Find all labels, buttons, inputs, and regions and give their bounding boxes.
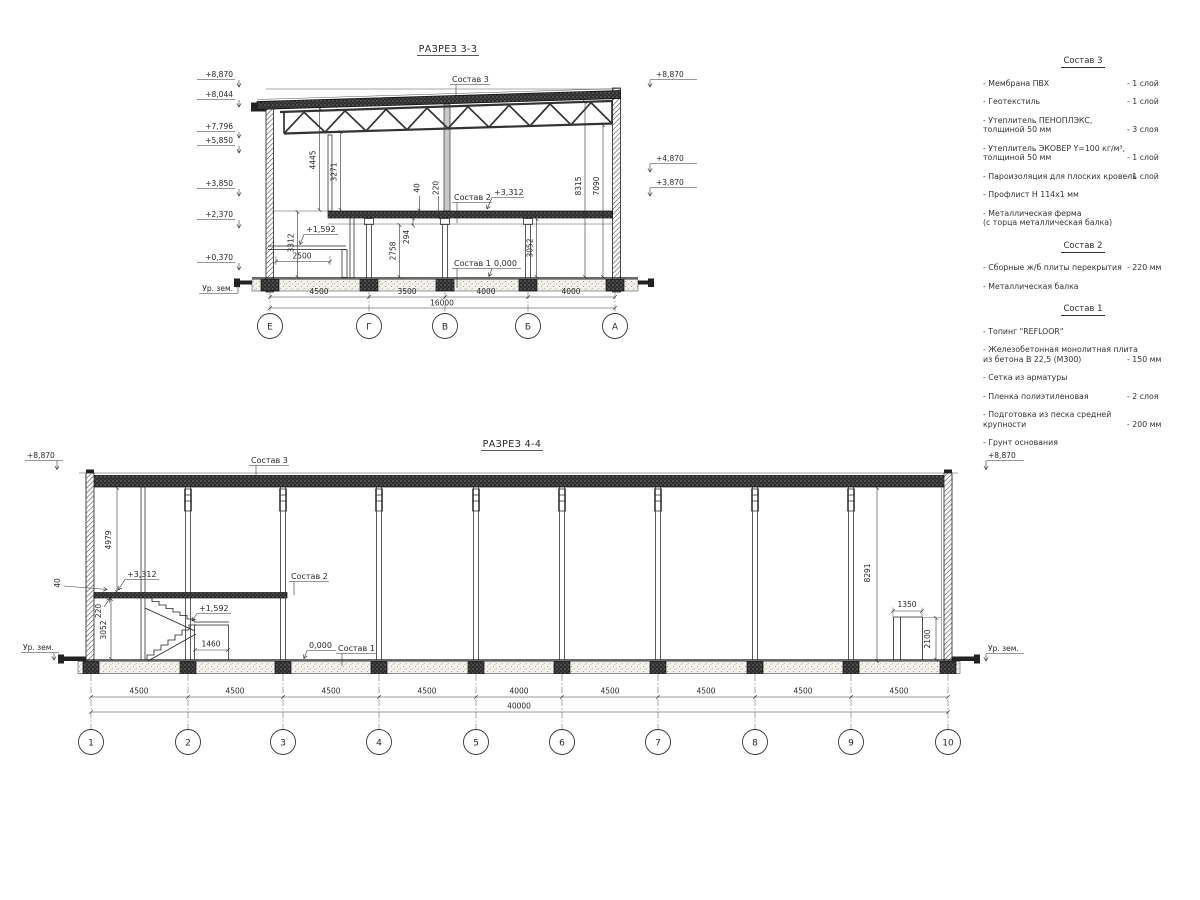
elevation-label: +5,850 xyxy=(205,136,233,145)
level-1592-label: +1,592 xyxy=(306,225,336,234)
legend-item: - Мембрана ПВХ- 1 слой xyxy=(983,79,1183,89)
dim-text: 3052 xyxy=(526,238,535,257)
section-3-3: РАЗРЕЗ 3-3 xyxy=(197,44,697,339)
bottom-dims-4-4: 4500 4500 4500 4500 4000 4500 4500 4500 … xyxy=(79,674,961,755)
legend-item: - Профлист Н 114х1 мм xyxy=(983,190,1183,200)
door xyxy=(894,617,942,660)
elevation-label: +8,870 xyxy=(205,70,233,79)
legend-item: - Утеплитель ПЕНОПЛЭКС,толщиной 50 мм- 3… xyxy=(983,116,1183,135)
upper-column-v xyxy=(444,104,450,211)
grid-bubble-label: 5 xyxy=(473,739,479,749)
dim-text: 4500 xyxy=(600,687,619,696)
legend-item: - Геотекстиль- 1 слой xyxy=(983,97,1183,107)
elevation-label: +3,850 xyxy=(205,179,233,188)
elevation-marks-left: +8,870 +8,044 +7,796 +5,850 +3,850 +2,37… xyxy=(197,70,239,294)
dim-text: 4500 xyxy=(696,687,715,696)
grid-bubble-label: 6 xyxy=(559,739,565,749)
dim-text: 8315 xyxy=(574,176,583,195)
callouts-4-4: Состав 3 Состав 2 Состав 1 0,000 +3,312 … xyxy=(118,456,376,666)
legend-heading-sostav1: Состав 1 xyxy=(983,305,1183,315)
elevation-label: +8,870 xyxy=(656,70,684,79)
layers1-label: Состав 1 xyxy=(454,259,491,268)
ground-level-label: Ур. зем. xyxy=(988,644,1019,653)
dim-text: 4500 xyxy=(321,687,340,696)
stair-wall-lower xyxy=(350,218,354,278)
grid-bubble-label: 3 xyxy=(280,739,286,749)
layers1-label: Состав 1 xyxy=(338,644,375,653)
level-0-label: 0,000 xyxy=(309,641,332,650)
level-1592-label: +1,592 xyxy=(199,604,229,613)
elevation-label: +4,870 xyxy=(656,154,684,163)
ground-strip xyxy=(78,662,960,674)
dim-text: 2758 xyxy=(389,241,398,260)
legend-panel: Состав 3 - Мембрана ПВХ- 1 слой - Геотек… xyxy=(983,57,1183,457)
dim-text: 40 xyxy=(413,183,422,193)
roof-slab xyxy=(86,476,952,488)
legend-item: - Утеплитель ЭКОВЕР Y=100 кг/м³,толщиной… xyxy=(983,144,1183,163)
grid-bubbles-3-3: Е Г В Б А xyxy=(258,314,628,339)
dim-text: 4000 xyxy=(561,287,580,296)
level-3312-label: +3,312 xyxy=(127,570,157,579)
layers2-label: Состав 2 xyxy=(454,193,491,202)
section-4-4: РАЗРЕЗ 4-4 xyxy=(21,439,1024,755)
columns-4-4 xyxy=(185,487,855,660)
legend-item: - Железобетонная монолитная плитаиз бето… xyxy=(983,345,1183,364)
section-title: РАЗРЕЗ 3-3 xyxy=(419,44,478,55)
dim-text: 7090 xyxy=(592,176,601,195)
elevation-marks-right: +8,870 +4,870 +3,870 xyxy=(650,70,697,196)
legend-heading-sostav3: Состав 3 xyxy=(983,57,1183,67)
legend-item: - Подготовка из песка среднейкрупности- … xyxy=(983,410,1183,429)
grid-bubble-label: Е xyxy=(267,323,273,333)
dim-text: 3500 xyxy=(397,287,416,296)
dim-text: 4500 xyxy=(129,687,148,696)
dim-text: 3312 xyxy=(287,233,296,252)
elevation-label: +0,370 xyxy=(205,253,233,262)
legend-item: - Металлическая балка xyxy=(983,282,1183,292)
dim-text: 1350 xyxy=(897,600,916,609)
dim-text: 8291 xyxy=(863,563,872,582)
left-wall xyxy=(86,473,94,663)
grid-bubble-label: 2 xyxy=(185,739,191,749)
dim-text: 16000 xyxy=(430,299,454,308)
dim-text: 4000 xyxy=(509,687,528,696)
mezzanine-slab xyxy=(94,593,287,599)
grid-bubble-label: В xyxy=(442,323,448,333)
layers3-label: Состав 3 xyxy=(452,75,489,84)
grid-bubble-label: 8 xyxy=(752,739,758,749)
grid-bubbles-4-4: 1 2 3 4 5 6 7 8 9 10 xyxy=(79,730,961,755)
right-wall xyxy=(613,88,621,292)
dim-text: 40 xyxy=(53,578,62,588)
legend-item: - Топинг "REFLOOR" xyxy=(983,327,1183,337)
elevation-label: +8,044 xyxy=(205,90,233,99)
drawing-sheet: РАЗРЕЗ 3-3 xyxy=(0,0,1200,900)
grid-bubble-label: 9 xyxy=(848,739,854,749)
legend-item: - Сетка из арматуры xyxy=(983,373,1183,383)
dim-text: 294 xyxy=(402,230,411,245)
dim-text: 2500 xyxy=(292,252,311,261)
left-wall xyxy=(266,106,274,292)
dim-text: 4979 xyxy=(104,530,113,549)
elevation-label: +2,370 xyxy=(205,210,233,219)
section-title: РАЗРЕЗ 4-4 xyxy=(483,439,542,450)
grid-bubble-label: 4 xyxy=(376,739,382,749)
ground-level-label: Ур. зем. xyxy=(23,643,54,652)
grid-bubble-label: Б xyxy=(525,323,531,333)
dim-text: 2100 xyxy=(923,629,932,648)
legend-item: - Грунт основания xyxy=(983,438,1183,448)
legend-item: - Пароизоляция для плоских кровель- 1 сл… xyxy=(983,172,1183,182)
layers2-label: Состав 2 xyxy=(291,572,328,581)
dim-text: 220 xyxy=(432,181,441,196)
legend-item: - Сборные ж/б плиты перекрытия- 220 мм xyxy=(983,263,1183,273)
grid-bubble-label: А xyxy=(612,323,619,333)
dim-text: 4500 xyxy=(417,687,436,696)
legend-item: - Пленка полиэтиленовая- 2 слоя xyxy=(983,392,1183,402)
grid-bubble-label: Г xyxy=(366,323,372,333)
structure-4-4 xyxy=(58,470,980,674)
dim-text: 40000 xyxy=(507,702,531,711)
elevation-label: +7,796 xyxy=(205,122,233,131)
elevation-label: +3,870 xyxy=(656,178,684,187)
dim-text: 4500 xyxy=(309,287,328,296)
dim-text: 4445 xyxy=(309,150,318,169)
bottom-dims-3-3: 4500 3500 4000 4000 16000 Е Г В Б А xyxy=(258,287,628,339)
layers3-label: Состав 3 xyxy=(251,456,288,465)
elevation-label: +8,870 xyxy=(27,451,55,460)
dim-text: 3052 xyxy=(99,620,108,639)
dim-text: 3271 xyxy=(330,162,339,181)
dim-text: 4000 xyxy=(476,287,495,296)
legend-heading-sostav2: Состав 2 xyxy=(983,242,1183,252)
floor-slab-3312 xyxy=(328,211,613,218)
dim-text: 220 xyxy=(94,604,103,619)
legend-item: - Металлическая ферма(с торца металличес… xyxy=(983,209,1183,228)
ground-level-label: Ур. зем. xyxy=(202,284,233,293)
grid-bubble-label: 1 xyxy=(88,739,94,749)
grid-bubble-label: 10 xyxy=(942,739,954,749)
right-wall xyxy=(944,473,952,663)
grid-bubble-label: 7 xyxy=(655,739,661,749)
level-3312-label: +3,312 xyxy=(494,188,524,197)
dim-text: 4500 xyxy=(225,687,244,696)
dim-text: 4500 xyxy=(889,687,908,696)
dim-text: 4500 xyxy=(793,687,812,696)
dim-text: 1460 xyxy=(201,640,220,649)
level-0-label: 0,000 xyxy=(494,259,517,268)
